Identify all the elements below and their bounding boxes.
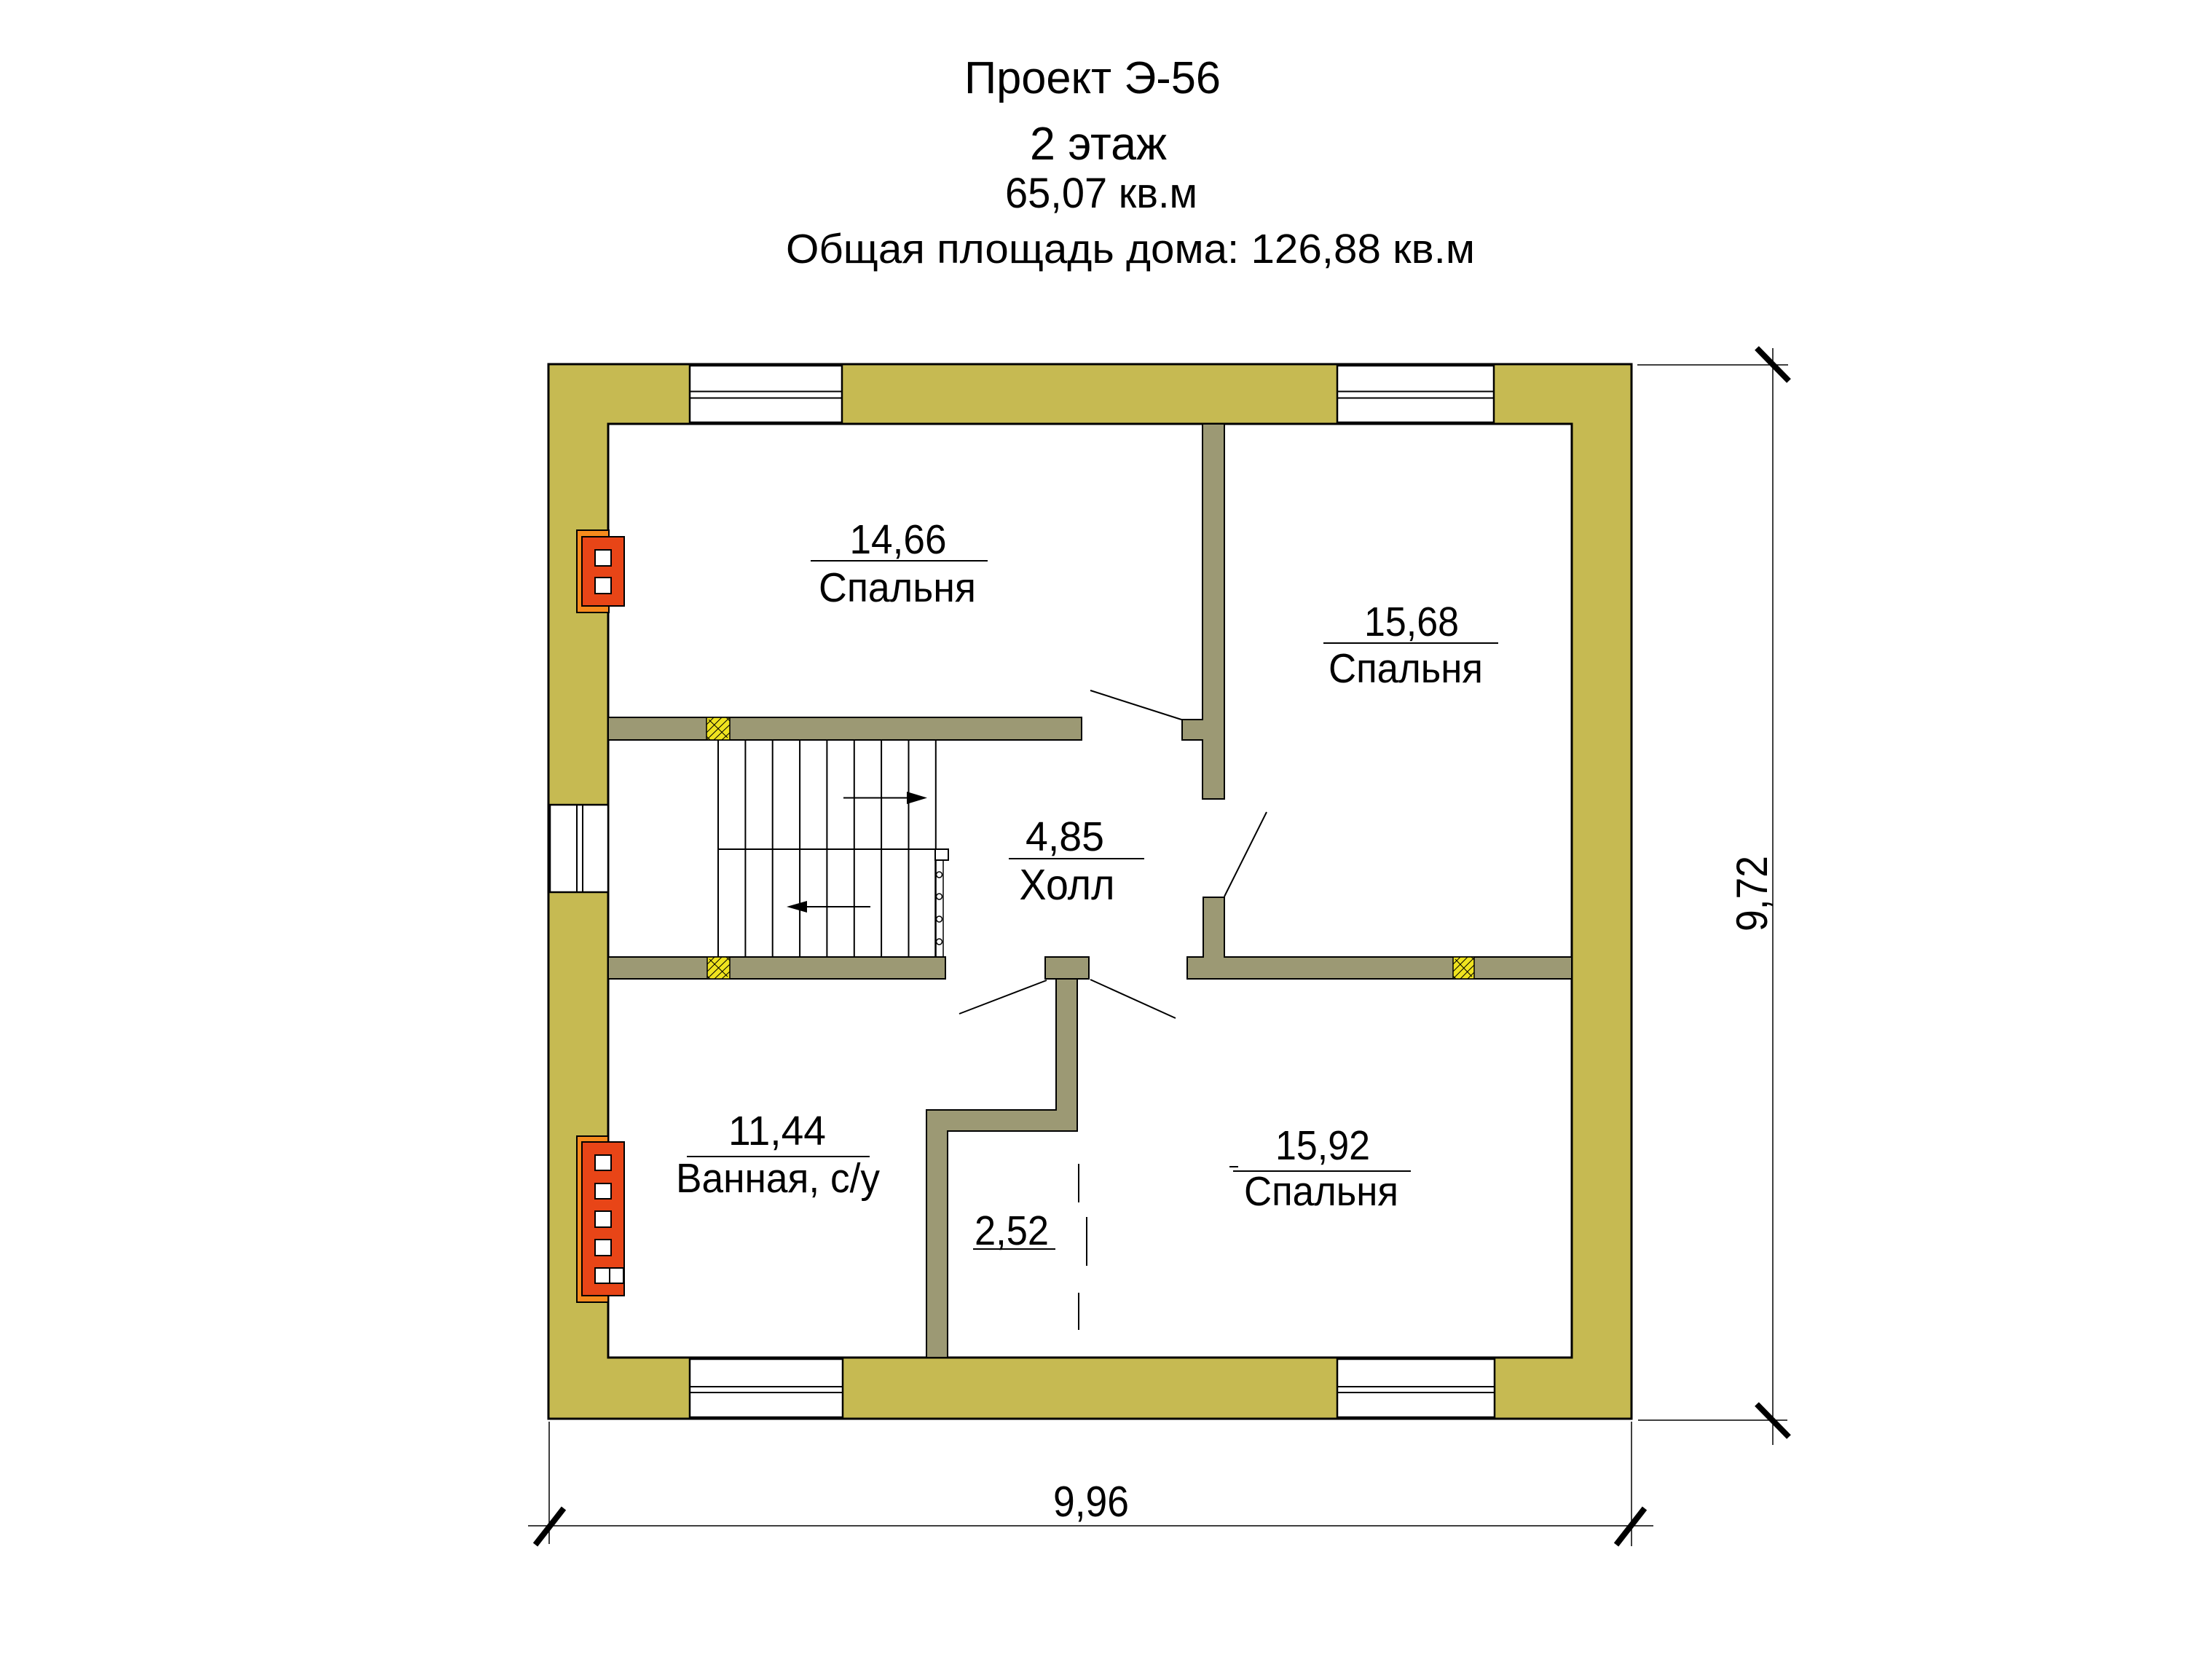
svg-text:2,52: 2,52 <box>975 1208 1049 1254</box>
svg-text:11,44: 11,44 <box>728 1108 826 1154</box>
svg-text:Спальня: Спальня <box>1329 645 1483 692</box>
svg-text:Ванная, с/у: Ванная, с/у <box>676 1155 880 1202</box>
svg-text:15,68: 15,68 <box>1364 599 1459 645</box>
svg-text:Спальня: Спальня <box>1244 1168 1398 1215</box>
svg-text:Спальня: Спальня <box>819 564 976 611</box>
svg-text:9,72: 9,72 <box>1728 856 1776 931</box>
svg-text:Проект Э-56: Проект Э-56 <box>964 53 1221 103</box>
svg-text:2 этаж: 2 этаж <box>1030 117 1167 170</box>
svg-text:4,85: 4,85 <box>1026 814 1104 860</box>
svg-text:65,07 кв.м: 65,07 кв.м <box>1005 170 1197 217</box>
svg-text:15,92: 15,92 <box>1275 1122 1370 1169</box>
svg-text:Общая площадь дома: 126,88 кв.: Общая площадь дома: 126,88 кв.м <box>786 226 1475 272</box>
svg-text:9,96: 9,96 <box>1053 1478 1129 1526</box>
svg-text:14,66: 14,66 <box>850 516 947 563</box>
svg-text:Холл: Холл <box>1020 861 1115 909</box>
